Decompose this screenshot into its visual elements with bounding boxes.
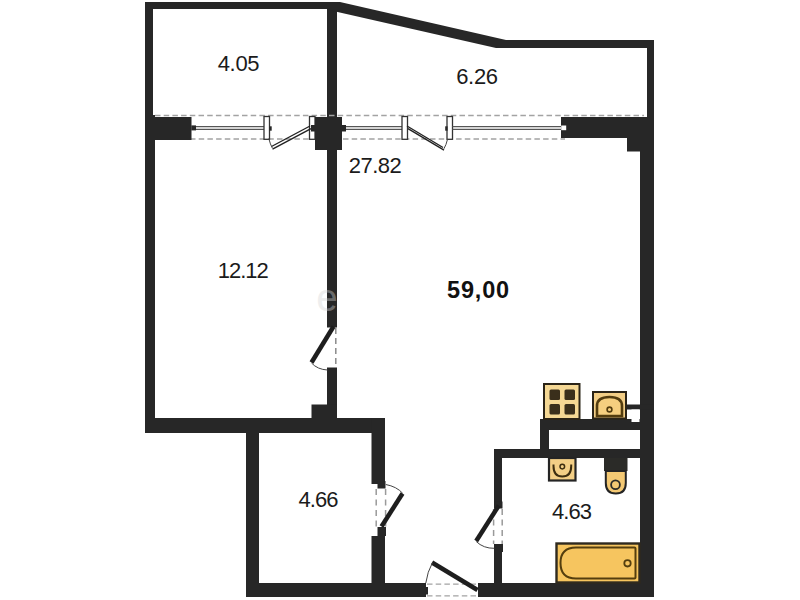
svg-text:e: e bbox=[316, 277, 337, 319]
svg-text:12.12: 12.12 bbox=[218, 258, 269, 283]
svg-text:6.26: 6.26 bbox=[456, 64, 498, 89]
svg-text:4.05: 4.05 bbox=[218, 51, 260, 76]
svg-text:4.63: 4.63 bbox=[552, 499, 592, 524]
svg-text:27.82: 27.82 bbox=[349, 153, 402, 178]
svg-text:59,00: 59,00 bbox=[447, 277, 510, 303]
svg-text:4.66: 4.66 bbox=[299, 487, 339, 512]
